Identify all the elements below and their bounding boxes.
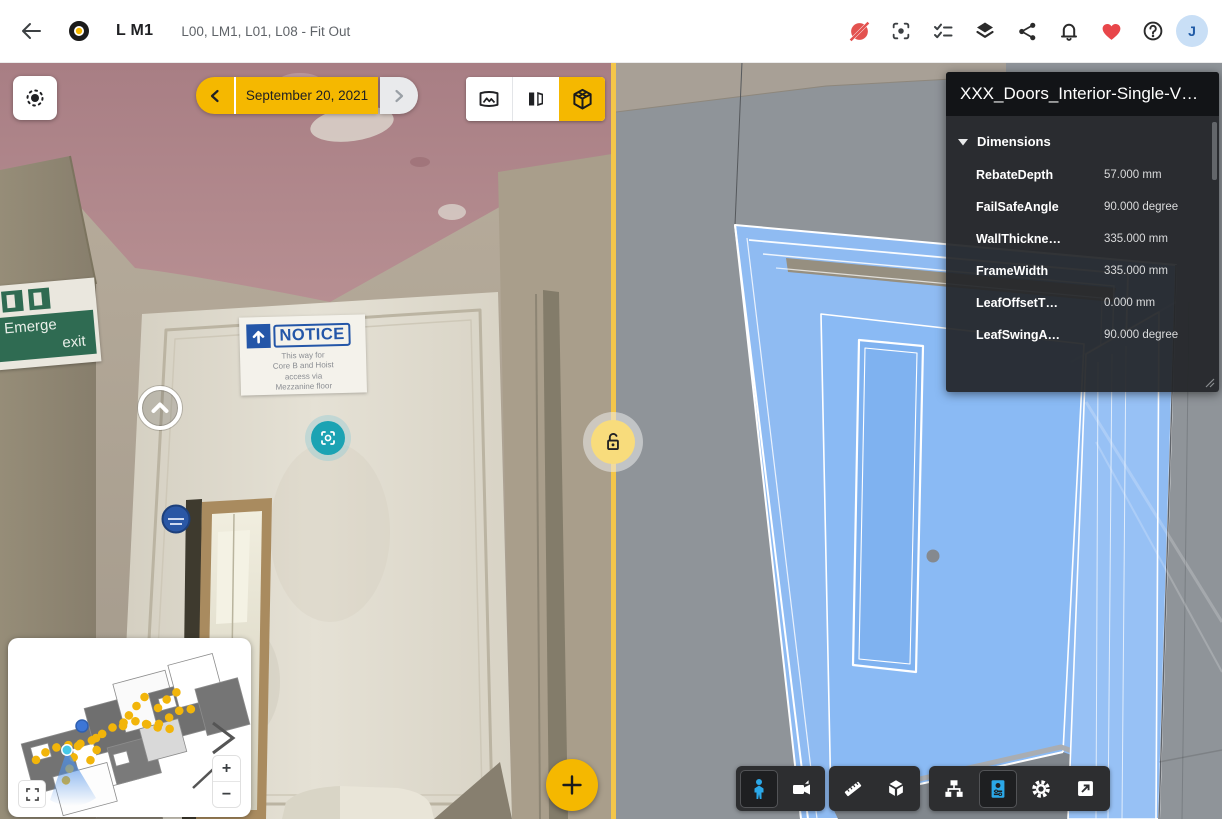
cube-icon (885, 778, 907, 800)
current-date[interactable]: September 20, 2021 (234, 77, 378, 114)
walk-mode-button[interactable] (740, 770, 778, 808)
hierarchy-icon (943, 778, 965, 800)
property-value: 335.000 mm (1104, 265, 1168, 277)
bell-icon (1058, 20, 1080, 42)
selected-photo-dot[interactable] (76, 720, 88, 732)
current-location-dot (62, 745, 72, 755)
dimensions-section-header[interactable]: Dimensions (946, 122, 1219, 159)
scan-capture-button[interactable] (882, 12, 920, 50)
person-icon (749, 778, 769, 800)
add-button[interactable] (546, 759, 598, 811)
minimap[interactable]: + − (8, 638, 251, 817)
toolbar-view-group (929, 766, 1110, 811)
sun-icon (24, 87, 46, 109)
property-value: 0.000 mm (1104, 297, 1155, 309)
brightness-button[interactable] (13, 76, 57, 120)
minimap-expand-button[interactable] (18, 780, 46, 808)
property-label: WallThickne… (976, 232, 1104, 246)
notifications-button[interactable] (1050, 12, 1088, 50)
chevron-right-icon (392, 89, 406, 103)
layers-icon (974, 20, 996, 42)
property-row: LeafSwingA… 90.000 degree (946, 319, 1219, 351)
top-bar: L M1 L00, LM1, L01, L08 - Fit Out (0, 0, 1222, 63)
properties-panel[interactable]: XXX_Doors_Interior-Single-V… Dimensions … (946, 72, 1219, 392)
property-label: LeafSwingA… (976, 328, 1104, 342)
property-row: LeafOffsetT… 0.000 mm (946, 287, 1219, 319)
chevron-left-icon (208, 89, 222, 103)
fullscreen-icon (26, 788, 39, 801)
minimap-zoom-in-button[interactable]: + (213, 756, 240, 781)
model-viewport[interactable]: XXX_Doors_Interior-Single-V… Dimensions … (616, 62, 1222, 819)
exit-pictogram-icon (1, 290, 24, 313)
panel-resize-handle[interactable] (1205, 378, 1215, 388)
properties-panel-title: XXX_Doors_Interior-Single-V… (946, 72, 1219, 116)
panel-scrollbar[interactable] (1212, 122, 1217, 180)
toolbar-navigation-group (736, 766, 825, 811)
split-view-button[interactable] (512, 77, 559, 121)
ruler-icon (842, 778, 864, 800)
property-value: 57.000 mm (1104, 169, 1162, 181)
page-title: L M1 (116, 22, 153, 40)
scan-icon (890, 20, 912, 42)
unlock-icon (601, 430, 625, 454)
share-icon (1017, 21, 1038, 42)
property-row: FailSafeAngle 90.000 degree (946, 191, 1219, 223)
property-label: LeafOffsetT… (976, 296, 1104, 310)
view-mode-toggles (466, 77, 605, 121)
photo-viewport[interactable]: Emerge exit NOTICE This way for Core B a… (0, 62, 612, 819)
property-row: WallThickne… 335.000 mm (946, 223, 1219, 255)
visibility-off-icon (848, 20, 871, 43)
avatar[interactable]: J (1176, 15, 1208, 47)
layers-button[interactable] (966, 12, 1004, 50)
notice-sign: NOTICE This way for Core B and Hoist acc… (239, 314, 367, 395)
property-label: FailSafeAngle (976, 200, 1104, 214)
property-value: 335.000 mm (1104, 233, 1168, 245)
up-arrow-pictogram-icon (246, 324, 271, 349)
chevron-up-icon (149, 397, 171, 419)
minimap-zoom-out-button[interactable]: − (213, 781, 240, 807)
visibility-off-button[interactable] (840, 12, 878, 50)
help-button[interactable] (1134, 12, 1172, 50)
property-row: RebateDepth 57.000 mm (946, 159, 1219, 191)
property-row: FrameWidth 335.000 mm (946, 255, 1219, 287)
settings-button[interactable] (1022, 770, 1060, 808)
exit-pictogram-icon (28, 288, 51, 311)
pano-image-icon (477, 87, 501, 111)
property-label: FrameWidth (976, 264, 1104, 278)
navigate-forward-button[interactable] (138, 386, 182, 430)
gear-icon (1030, 778, 1052, 800)
date-navigation: September 20, 2021 (196, 77, 418, 114)
minimap-zoom-control: + − (212, 755, 241, 808)
property-label: RebateDepth (976, 168, 1104, 182)
property-value: 90.000 degree (1104, 201, 1178, 213)
scan-icon (319, 429, 337, 447)
breadcrumb: L00, LM1, L01, L08 - Fit Out (181, 24, 350, 39)
share-button[interactable] (1008, 12, 1046, 50)
back-arrow-icon (20, 20, 42, 42)
help-icon (1142, 20, 1164, 42)
section-box-button[interactable] (877, 770, 915, 808)
emergency-exit-sign: Emerge exit (0, 278, 101, 371)
properties-button[interactable] (979, 770, 1017, 808)
checklist-icon (932, 20, 954, 42)
field-notes-button[interactable] (924, 12, 962, 50)
openspace-logo-icon[interactable] (60, 12, 98, 50)
caret-down-icon (958, 138, 968, 146)
video-camera-icon (791, 779, 813, 799)
model-view-button[interactable] (559, 77, 605, 121)
notice-sign-title: NOTICE (273, 322, 351, 347)
topbar-actions: J (840, 12, 1208, 50)
toolbar-measure-group (829, 766, 920, 811)
back-button[interactable] (12, 12, 50, 50)
expand-icon (1075, 778, 1096, 799)
split-view-icon (524, 87, 548, 111)
favorites-button[interactable] (1092, 12, 1130, 50)
next-date-button[interactable] (380, 77, 418, 114)
bim-cube-icon (570, 87, 595, 112)
model-tree-button[interactable] (935, 770, 973, 808)
properties-card-icon (987, 778, 1009, 800)
previous-date-button[interactable] (196, 77, 234, 114)
heart-icon (1100, 20, 1123, 43)
property-value: 90.000 degree (1104, 329, 1178, 341)
sync-lock-button[interactable] (583, 412, 643, 472)
measure-button[interactable] (834, 770, 872, 808)
camera-path-button[interactable] (783, 770, 821, 808)
bim-object-marker[interactable] (311, 421, 345, 455)
pano-view-button[interactable] (466, 77, 512, 121)
fullscreen-model-button[interactable] (1066, 770, 1104, 808)
plus-icon (561, 774, 583, 796)
